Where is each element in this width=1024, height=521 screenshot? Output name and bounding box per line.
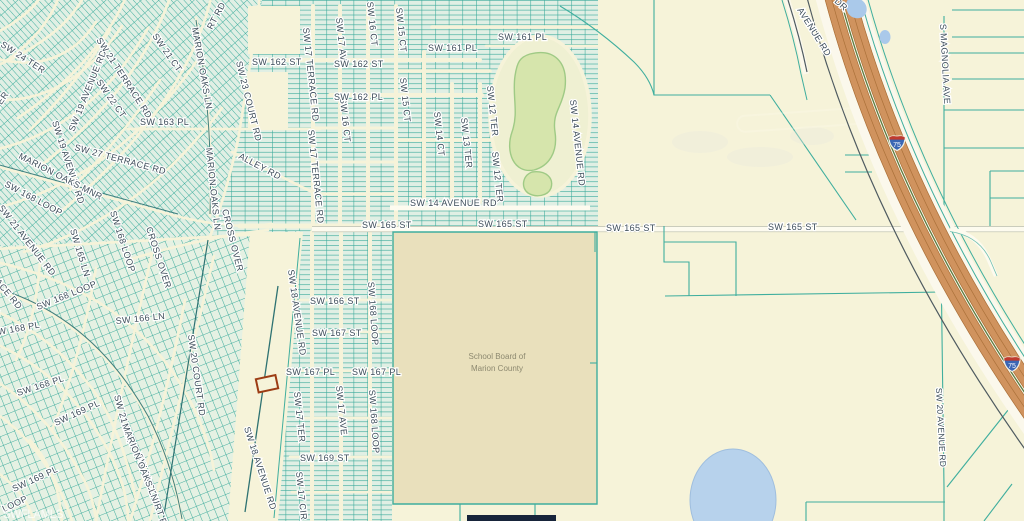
svg-text:SW 161 PL: SW 161 PL (428, 43, 477, 53)
svg-text:SW 165 ST: SW 165 ST (362, 220, 412, 230)
svg-text:SW 161 PL: SW 161 PL (498, 32, 547, 42)
svg-text:SW 167 PL: SW 167 PL (352, 367, 401, 377)
svg-text:75: 75 (893, 142, 901, 149)
svg-text:Marion County: Marion County (471, 364, 523, 373)
svg-text:SW 165 ST: SW 165 ST (478, 219, 528, 229)
svg-text:School Board of: School Board of (469, 352, 527, 361)
svg-text:SWFLAMLS: SWFLAMLS (3, 509, 64, 521)
svg-text:SW 163 PL: SW 163 PL (140, 117, 189, 127)
svg-text:SW 162 PL: SW 162 PL (334, 92, 383, 102)
svg-text:SW 166 ST: SW 166 ST (310, 296, 360, 306)
svg-text:SW 14 AVENUE RD: SW 14 AVENUE RD (410, 198, 497, 208)
svg-text:SW 165 ST: SW 165 ST (606, 223, 656, 233)
svg-text:SW 167 PL: SW 167 PL (286, 367, 335, 377)
svg-text:SW 162 ST: SW 162 ST (252, 57, 302, 67)
svg-text:SW 167 ST: SW 167 ST (312, 328, 362, 338)
svg-text:75: 75 (1008, 363, 1016, 370)
svg-text:SW 165 ST: SW 165 ST (768, 222, 818, 232)
svg-text:SW 162 ST: SW 162 ST (334, 59, 384, 69)
svg-text:SW 169 ST: SW 169 ST (300, 453, 350, 463)
